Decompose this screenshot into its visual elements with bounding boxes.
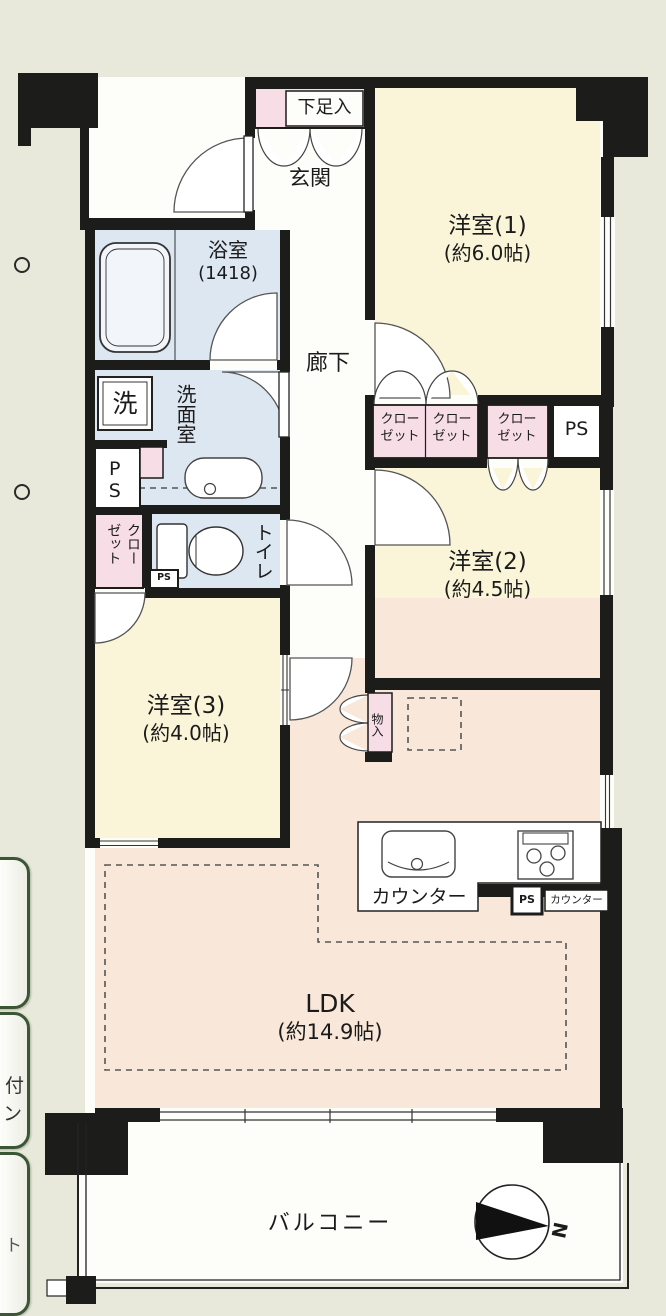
western1-size: (約6.0帖) [375,241,600,266]
balcony-left-stub [47,1280,67,1296]
western2-name: 洋室(2) [375,548,600,577]
shoe-cabinet-label: 下足入 [287,97,362,120]
side-button-1[interactable] [0,857,30,1009]
ldk-size: (約14.9帖) [180,1019,480,1045]
western2-size: (約4.5帖) [375,577,600,602]
counter-label: カウンター [360,886,478,910]
side-button-2-text-bottom: ン [3,1099,22,1126]
washroom-door-leaf [279,372,289,437]
bathtub-icon [100,243,170,352]
toilet-label: トイレ [250,516,274,586]
bath-label: 浴室 (1418) [178,238,278,286]
kitchen-ps-label: PS [512,893,542,907]
western2-label: 洋室(2) (約4.5帖) [375,548,600,602]
western3-label: 洋室(3) (約4.0帖) [95,692,277,746]
genkan-label: 玄関 [256,165,364,191]
floorplan-page: 下足入 玄関 浴室 (1418) 廊下 洗面室 洗 PS クローゼット トイレ … [0,0,666,1316]
toilet-bowl [189,527,243,575]
storage-label: 物入 [369,702,384,747]
entry-door-leaf [244,136,253,212]
side-button-2[interactable]: 付 ン [0,1012,30,1149]
western1-label: 洋室(1) (約6.0帖) [375,212,600,266]
balcony-label: バルコニー [230,1210,430,1238]
washer-label: 洗 [98,388,152,419]
closet-a-label: クローゼット [376,412,424,446]
closet-washroom-label: クローゼット [98,518,142,570]
balcony-left-block [66,1276,96,1304]
window-ldk-right [602,775,614,828]
window-western2 [600,490,614,595]
western3-name: 洋室(3) [95,692,277,721]
ldk-name: LDK [180,988,480,1019]
left-text-bullet-2 [14,484,30,500]
side-button-3[interactable]: ト [0,1152,30,1316]
pink-small-box [140,447,163,478]
balcony-window [160,1108,496,1124]
floorplan-drawing [0,0,666,1316]
bath-name: 浴室 [178,238,278,263]
washbasin-drain [205,484,216,495]
ps-top-label: PS [553,418,600,442]
side-button-2-text-top: 付 [5,1071,24,1098]
left-text-bullet-1 [14,257,30,273]
corridor-fill [290,230,365,658]
compass-north-label: N [544,1216,572,1244]
ps-washroom-label: PS [102,452,126,508]
closet-c-label: クローゼット [493,412,541,446]
western1-name: 洋室(1) [375,212,600,241]
ldk-fill-left [95,848,290,1108]
window-western3-low [100,839,158,847]
toilet-ps-label: PS [150,572,178,584]
kitchen-sink-drain [412,859,423,870]
side-button-3-text: ト [5,1231,22,1256]
counter-small-label: カウンター [545,894,608,907]
ldk-label: LDK (約14.9帖) [180,988,480,1046]
washbasin-icon [185,458,262,498]
sliding-door-western3 [280,655,290,725]
washroom-label: 洗面室 [172,374,197,454]
window-western1 [600,217,615,327]
western3-size: (約4.0帖) [95,721,277,746]
closet-b-label: クローゼット [428,412,476,446]
bath-size: (1418) [178,263,278,286]
corridor-label: 廊下 [291,350,365,378]
